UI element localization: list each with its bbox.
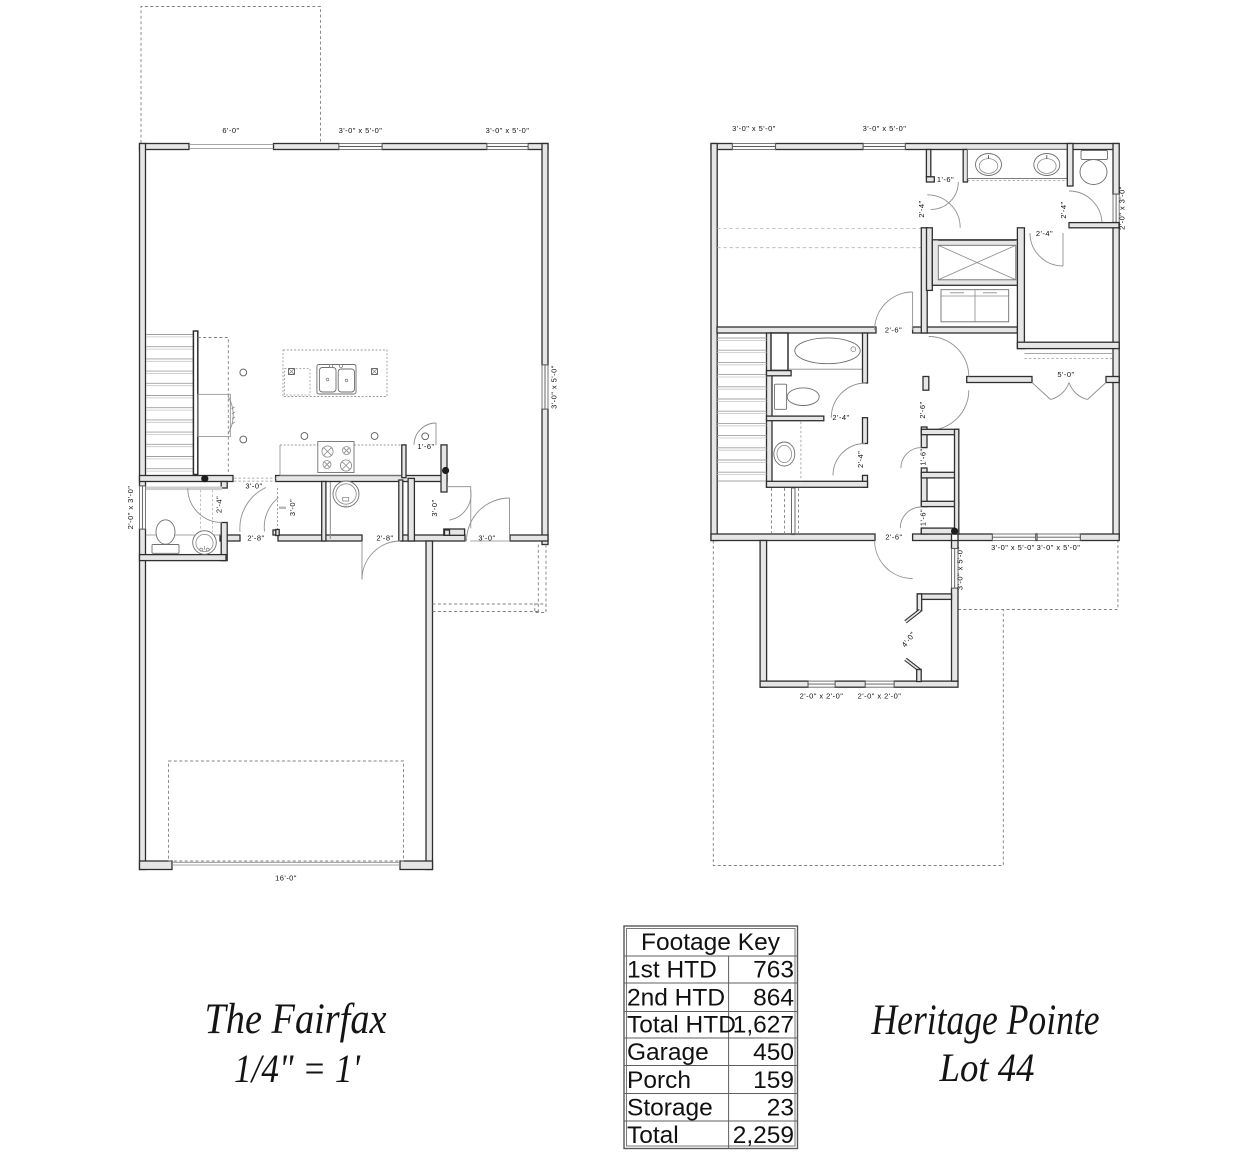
svg-text:2'-4": 2'-4" (215, 496, 224, 513)
svg-text:3'-0": 3'-0" (478, 533, 495, 542)
svg-text:5'-0": 5'-0" (1057, 370, 1074, 379)
svg-text:3'-0" x 5'-0": 3'-0" x 5'-0" (550, 365, 559, 409)
svg-text:2'-4": 2'-4" (917, 200, 926, 217)
svg-text:2'-0" x 3'-0": 2'-0" x 3'-0" (1118, 186, 1127, 230)
svg-text:3'-0" x 5'-0": 3'-0" x 5'-0" (1037, 543, 1081, 552)
svg-text:16'-0": 16'-0" (275, 874, 297, 883)
svg-text:2'-8": 2'-8" (247, 534, 264, 543)
svg-text:2'-8": 2'-8" (376, 534, 393, 543)
svg-text:2'-4": 2'-4" (832, 413, 849, 422)
svg-text:Total HTD: Total HTD (627, 1012, 736, 1039)
svg-text:1st HTD: 1st HTD (627, 957, 717, 984)
svg-text:Lot 44: Lot 44 (939, 1045, 1035, 1090)
svg-text:2'-4": 2'-4" (1036, 229, 1053, 238)
svg-text:WH: WH (344, 505, 349, 509)
svg-text:1'-6": 1'-6" (417, 442, 434, 451)
svg-text:3'-0" x 5'-0": 3'-0" x 5'-0" (339, 126, 383, 135)
svg-text:3'-0": 3'-0" (288, 499, 297, 516)
svg-text:159: 159 (753, 1067, 794, 1094)
svg-text:2'-0" x 2'-0": 2'-0" x 2'-0" (800, 692, 844, 701)
svg-text:23: 23 (767, 1095, 794, 1122)
svg-text:2'-6": 2'-6" (918, 401, 927, 418)
svg-text:2'-4": 2'-4" (1059, 201, 1068, 218)
svg-text:3'-0" x 5'-0": 3'-0" x 5'-0" (863, 124, 907, 133)
svg-text:1'-6": 1'-6" (919, 509, 928, 526)
svg-text:763: 763 (753, 957, 794, 984)
svg-text:2,259: 2,259 (733, 1122, 794, 1149)
svg-text:2'-4": 2'-4" (856, 451, 865, 468)
svg-text:2'-6": 2'-6" (885, 326, 902, 335)
svg-text:Garage: Garage (627, 1039, 709, 1066)
svg-text:450: 450 (753, 1039, 794, 1066)
svg-text:3'-0": 3'-0" (430, 499, 439, 516)
svg-text:3'-0": 3'-0" (245, 482, 262, 491)
svg-text:Footage Key: Footage Key (641, 929, 781, 956)
svg-text:1'-6": 1'-6" (937, 175, 954, 184)
svg-text:1,627: 1,627 (733, 1012, 794, 1039)
svg-text:3'-0" x 5'-0": 3'-0" x 5'-0" (732, 124, 776, 133)
svg-text:1/4" = 1': 1/4" = 1' (234, 1046, 361, 1091)
svg-text:Heritage Pointe: Heritage Pointe (871, 997, 1100, 1044)
svg-text:1'-6": 1'-6" (919, 448, 928, 465)
svg-text:4'-0": 4'-0" (900, 630, 918, 649)
svg-text:Total: Total (627, 1122, 679, 1149)
svg-text:2nd HTD: 2nd HTD (627, 985, 725, 1012)
svg-text:2'-0" x 2'-0": 2'-0" x 2'-0" (858, 692, 902, 701)
svg-text:Porch: Porch (627, 1067, 691, 1094)
svg-text:The Fairfax: The Fairfax (205, 996, 387, 1043)
svg-text:3'-0" x 5'-0": 3'-0" x 5'-0" (486, 126, 530, 135)
svg-text:3'-0" x 5'-0": 3'-0" x 5'-0" (956, 546, 965, 590)
svg-text:Storage: Storage (627, 1095, 713, 1122)
svg-text:2'-6": 2'-6" (885, 533, 902, 542)
svg-text:6'-0": 6'-0" (222, 126, 239, 135)
svg-text:2'-0" x 3'-0": 2'-0" x 3'-0" (126, 486, 135, 530)
svg-text:864: 864 (753, 985, 794, 1012)
svg-text:3'-0" x 5'-0": 3'-0" x 5'-0" (991, 543, 1035, 552)
